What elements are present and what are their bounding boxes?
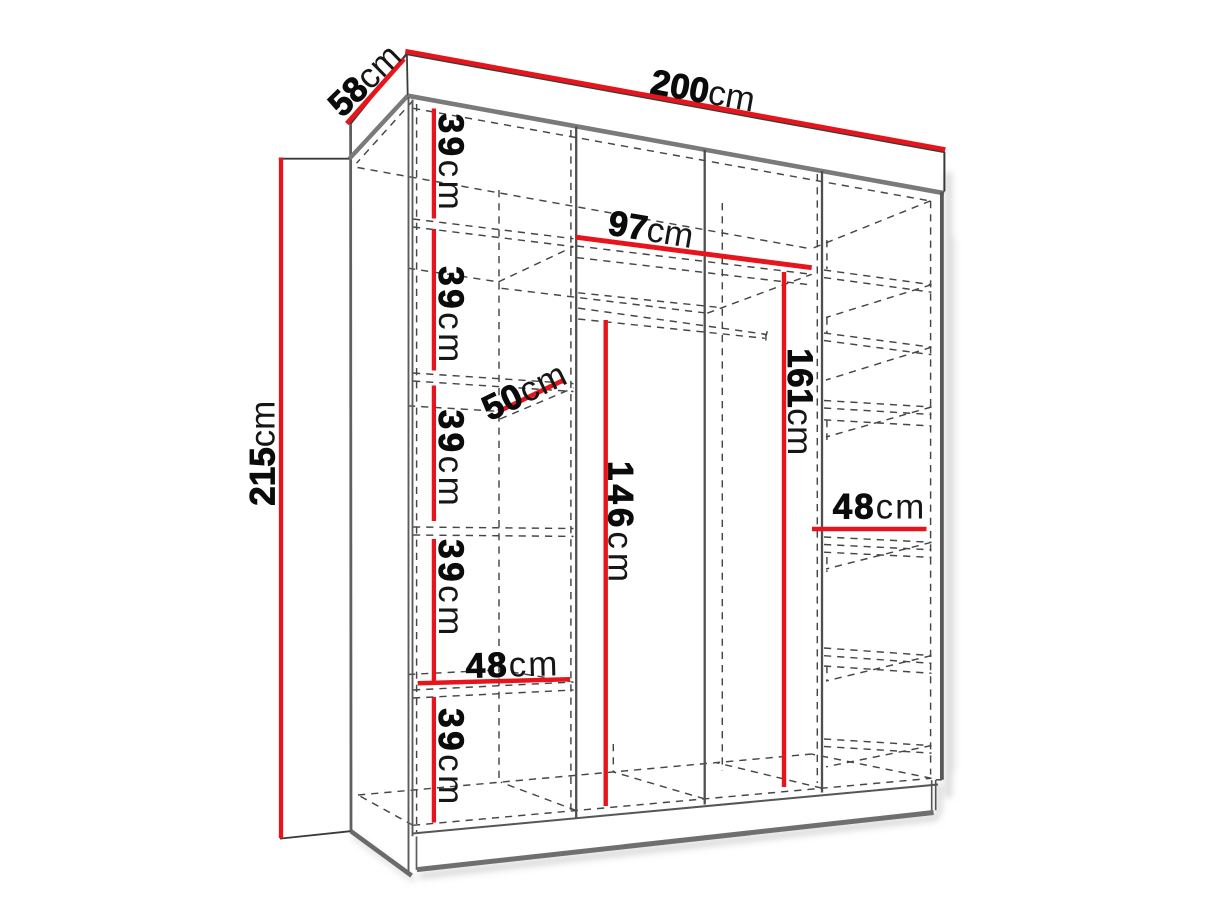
svg-text:39cm: 39cm xyxy=(431,539,470,639)
svg-text:39cm: 39cm xyxy=(431,114,470,214)
svg-text:48cm: 48cm xyxy=(833,487,927,526)
svg-text:39cm: 39cm xyxy=(431,410,470,510)
svg-text:161cm: 161cm xyxy=(780,348,819,456)
svg-text:215cm: 215cm xyxy=(243,401,282,506)
svg-text:48cm: 48cm xyxy=(465,644,560,685)
svg-text:39cm: 39cm xyxy=(431,708,470,808)
svg-text:146cm: 146cm xyxy=(600,461,639,586)
svg-text:39cm: 39cm xyxy=(431,266,470,366)
